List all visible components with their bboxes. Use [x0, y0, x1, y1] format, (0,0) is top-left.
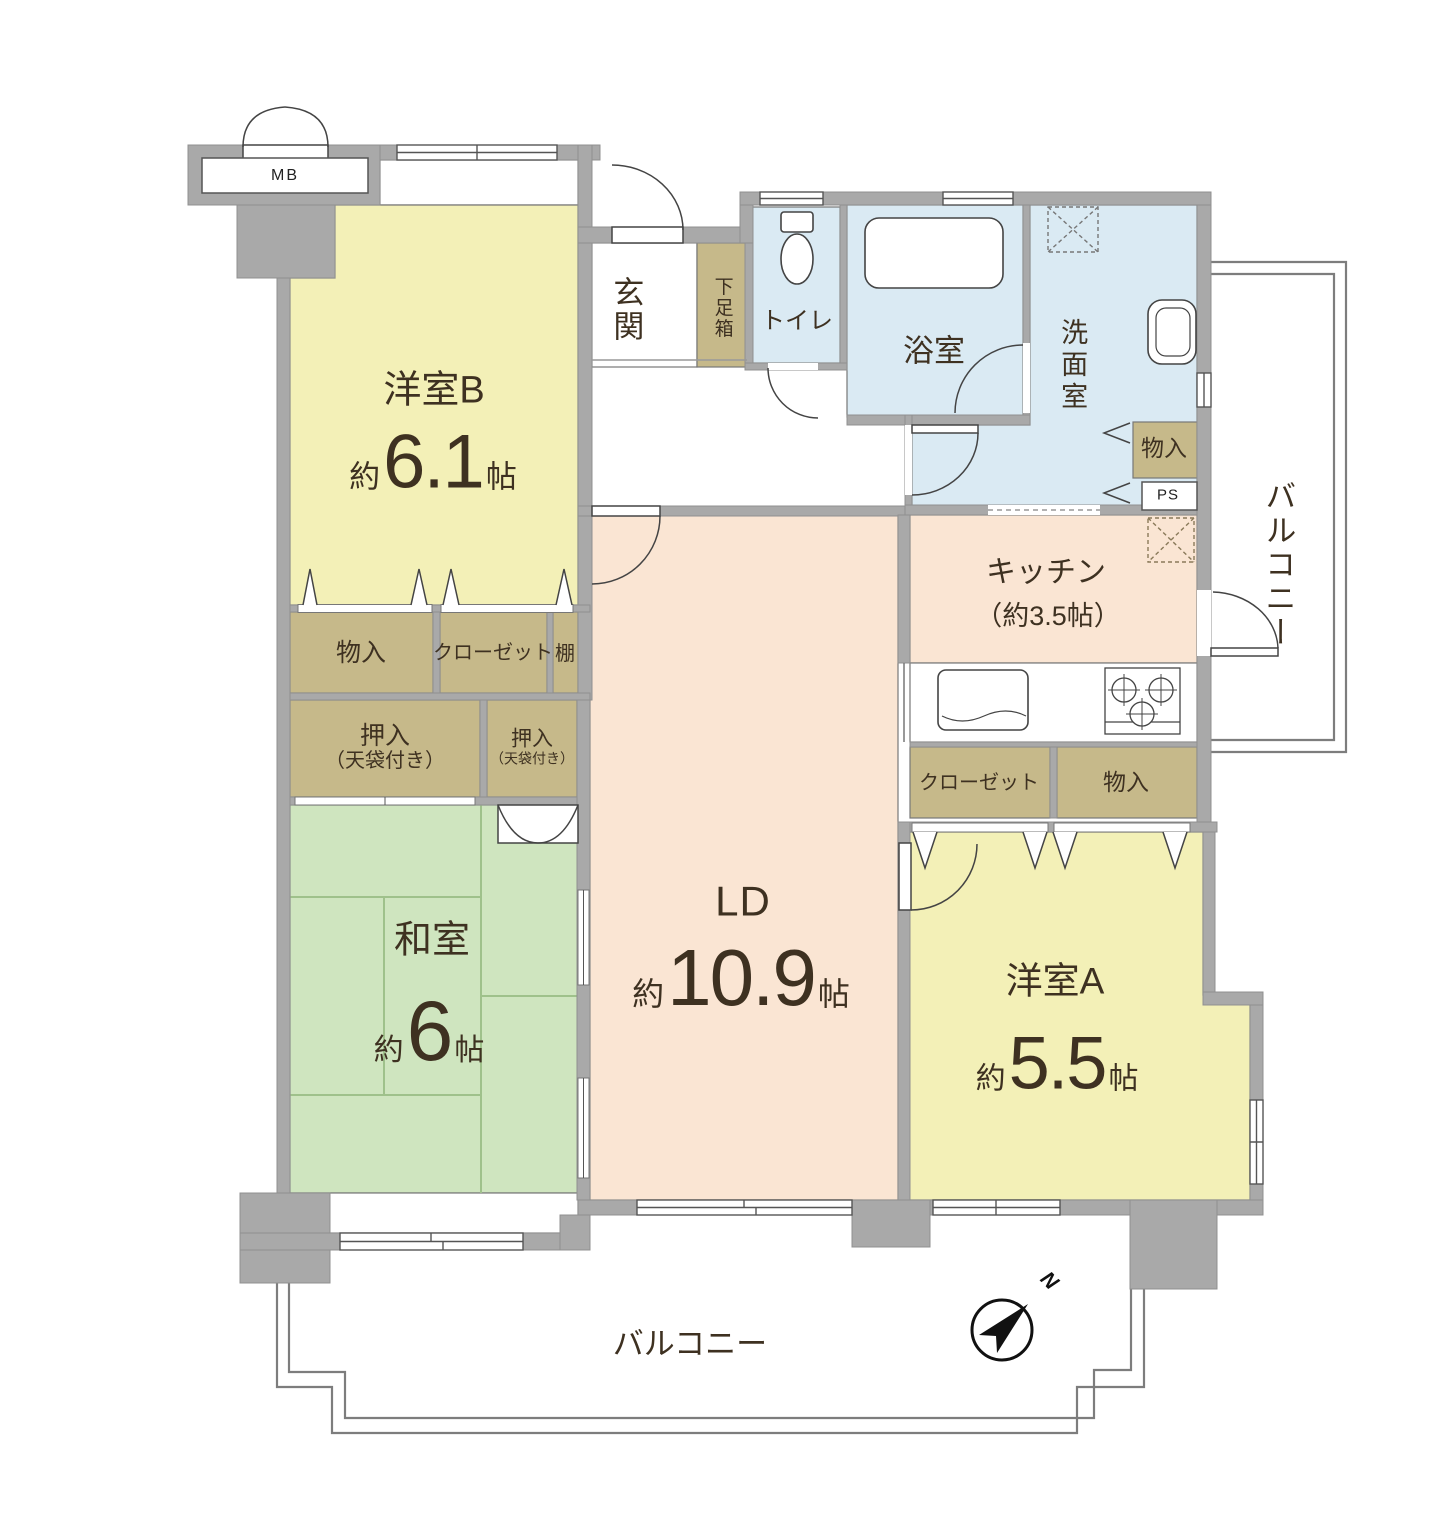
room-name-toilet: トイレ [761, 309, 833, 336]
oshiire-small-line1: 押入 [490, 727, 574, 751]
size-approx: 約 [374, 1034, 404, 1068]
room-name-yoshitsu-b: 洋室B [383, 370, 484, 413]
room-yoshitsu-b-sill [380, 160, 578, 205]
door-mb [243, 107, 328, 160]
tana-label: 棚 [555, 643, 575, 665]
monoire-washroom-label: 物入 [1141, 436, 1187, 462]
mb-label: MB [271, 167, 299, 185]
size-value: 6 [407, 984, 452, 1078]
size-approx: 約 [976, 1063, 1006, 1097]
room-name-washitsu: 和室 [394, 920, 470, 963]
door-washitsu-double [498, 805, 578, 843]
monoire-a-label: 物入 [1103, 770, 1149, 796]
size-unit: 帖 [454, 1034, 484, 1068]
window-yoshitsu-a-right [1250, 1100, 1263, 1184]
size-value: 10.9 [667, 933, 815, 1023]
room-name-bath: 浴室 [903, 335, 965, 370]
oshiire-large-line1: 押入 [325, 722, 445, 750]
room-size-ld: 約 10.9 帖 [632, 933, 850, 1023]
monoire-b-label: 物入 [336, 639, 386, 667]
floorplan: MB 洋室B 約 6.1 帖 物入 クローゼット 棚 押入 （天袋付き） 押入 … [0, 0, 1452, 1514]
size-approx: 約 [349, 460, 380, 495]
window-bath-top [943, 192, 1013, 205]
ps-label: PS [1157, 488, 1179, 505]
room-name-genkan: 玄関 [608, 276, 643, 344]
room-name-ld: LD [715, 877, 771, 924]
floorplan-drawing [0, 0, 1452, 1514]
room-size-yoshitsu-a: 約 5.5 帖 [976, 1023, 1139, 1106]
balcony-right-label: バルコニー [1260, 480, 1295, 650]
size-approx: 約 [632, 977, 664, 1013]
oshiire-large-line2: （天袋付き） [325, 750, 445, 772]
window-ld-bottom [637, 1200, 852, 1215]
kitchen-sink [938, 670, 1028, 730]
balcony-bottom-label: バルコニー [613, 1328, 767, 1363]
size-value: 6.1 [383, 419, 483, 504]
stove [1105, 668, 1180, 734]
room-name-getabako: 下足箱 [711, 277, 732, 340]
size-unit: 帖 [486, 460, 517, 495]
room-name-kitchen: キッチン [986, 556, 1106, 590]
size-unit: 帖 [818, 977, 850, 1013]
size-value: 5.5 [1009, 1023, 1106, 1106]
vanity-sink [1148, 300, 1196, 364]
oshiire-small-line2: （天袋付き） [490, 751, 574, 767]
room-size-kitchen: （約3.5帖） [975, 601, 1121, 631]
window-yoshitsu-b-top [397, 145, 557, 160]
room-name-yoshitsu-a: 洋室A [1006, 960, 1105, 1001]
door-entrance [612, 165, 683, 243]
window-yoshitsu-a-bottom [933, 1200, 1060, 1215]
room-washitsu-sill [290, 1193, 578, 1233]
room-ld-fill [590, 515, 898, 1200]
compass [972, 1300, 1032, 1360]
door-toilet [768, 363, 818, 418]
oshiire-large-label: 押入 （天袋付き） [325, 722, 445, 772]
toilet-fixture [781, 212, 813, 284]
closet-a-label: クローゼット [919, 772, 1039, 794]
size-unit: 帖 [1108, 1063, 1138, 1097]
room-size-washitsu: 約 6 帖 [374, 984, 485, 1078]
window-washitsu-bottom [340, 1233, 523, 1250]
oshiire-small-label: 押入 （天袋付き） [490, 727, 574, 766]
bathtub [865, 218, 1003, 288]
window-senmenshitsu-right [1197, 373, 1211, 407]
room-yoshitsu-a-fill [908, 832, 1250, 1200]
closet-b-label: クローゼット [433, 642, 553, 664]
room-name-senmenshitsu: 洗面室 [1057, 318, 1087, 414]
room-size-yoshitsu-b: 約 6.1 帖 [349, 419, 517, 504]
window-toilet-top [760, 192, 823, 205]
